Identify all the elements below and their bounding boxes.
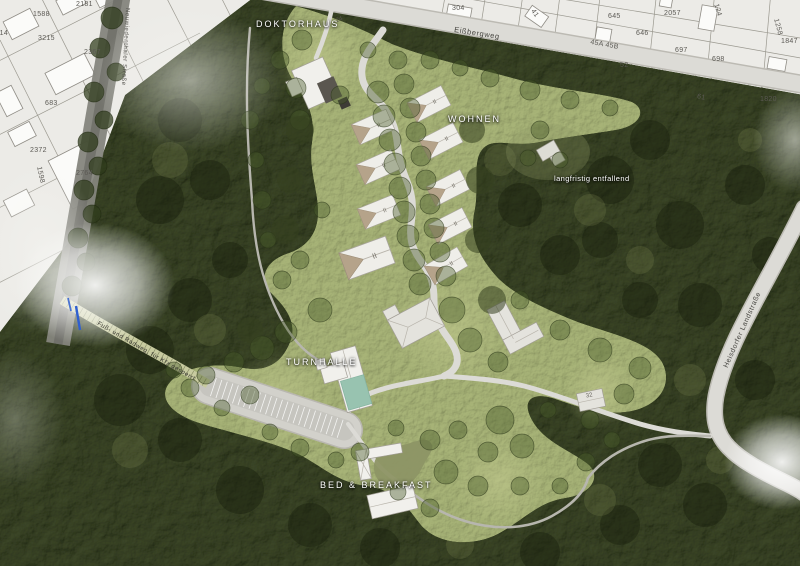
parcel-number: 2367 bbox=[84, 49, 101, 56]
parcel-number: 52 bbox=[620, 62, 628, 69]
label-bed-breakfast: BED & BREAKFAST bbox=[320, 480, 433, 490]
parcel-number: 3215 bbox=[38, 35, 55, 42]
parcel-number: 697 bbox=[675, 47, 688, 54]
site-plan: II bbox=[0, 0, 800, 566]
parcel-number: 2181 bbox=[76, 1, 93, 8]
parcel-number: 646 bbox=[636, 30, 649, 37]
parcel-number: 2764 bbox=[76, 170, 93, 177]
label-langfristig-entfallend: langfristig entfallend bbox=[554, 174, 630, 183]
parcel-number: 698 bbox=[712, 56, 725, 63]
parcel-number: 304 bbox=[452, 5, 465, 12]
parcel-number: 114 bbox=[0, 30, 8, 37]
parcel-number: 645 bbox=[608, 13, 621, 20]
parcel-number: 2372 bbox=[30, 147, 47, 154]
label-wohnen: WOHNEN bbox=[448, 114, 501, 124]
parcel-number: 683 bbox=[45, 100, 58, 107]
parcel-number: 1847 bbox=[781, 38, 798, 45]
parcel-number: 61 bbox=[696, 93, 706, 102]
label-doktorhaus: DOKTORHAUS bbox=[256, 19, 339, 29]
label-turnhalle: TURNHALLE bbox=[286, 357, 358, 367]
parcel-number: 2057 bbox=[664, 10, 681, 17]
parcel-number: 1820 bbox=[760, 96, 777, 103]
parcel-number: 1588 bbox=[33, 11, 50, 18]
